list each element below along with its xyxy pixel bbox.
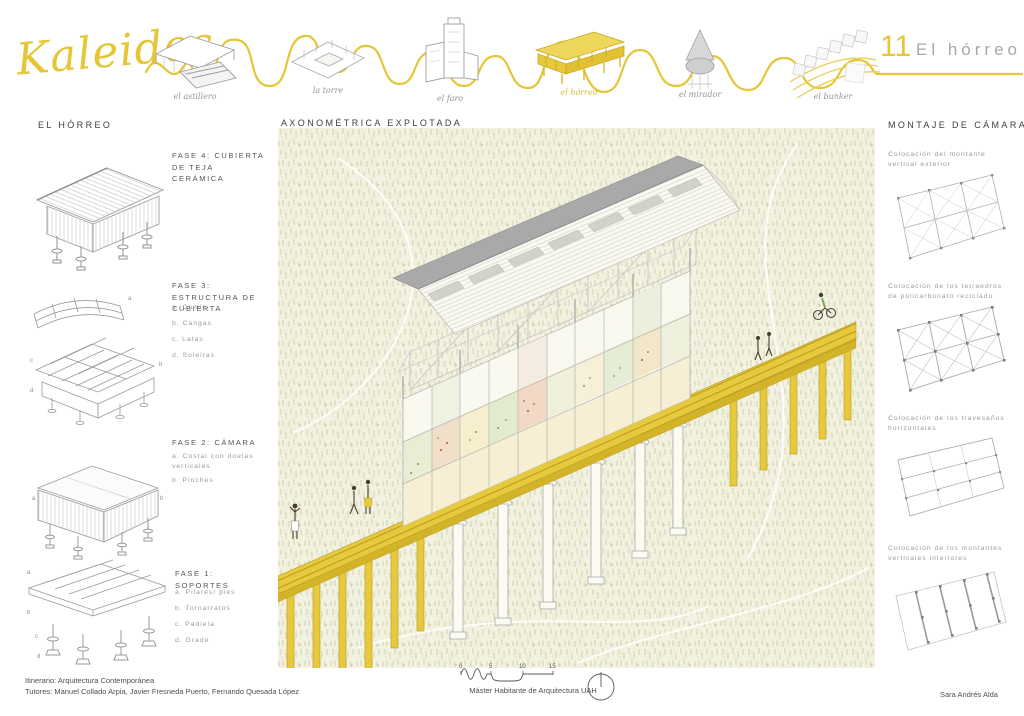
phase-1-drawing: a b c d — [25, 558, 170, 668]
north-compass — [584, 668, 618, 704]
project-icon-astillero — [150, 20, 240, 90]
phase-3-marker-b: b — [159, 362, 163, 368]
project-label-faro: el faro — [405, 94, 495, 103]
scale-tick-15: 15 — [549, 664, 556, 670]
phase-4-title: FASE 4: CUBIERTA DE TEJA CERÁMICA — [172, 150, 267, 185]
step-2-diagram — [888, 302, 1013, 407]
step-1-diagram — [888, 170, 1013, 275]
scale-tick-0: 0 — [459, 664, 463, 670]
project-icon-bunker — [786, 22, 881, 94]
sheet-title: El hórreo — [916, 40, 1021, 60]
scale-bar: 0 5 10 15 — [458, 662, 558, 682]
phase-4-drawing — [35, 148, 165, 273]
phase-2-marker-b: b — [160, 496, 164, 502]
sheet-number: 11 — [880, 30, 911, 64]
project-icon-mirador — [670, 26, 730, 94]
project-icon-faro — [412, 16, 487, 94]
axonometric-drawing — [278, 128, 875, 668]
project-label-mirador: el mirador — [655, 90, 745, 99]
phase-1-marker-d: d — [37, 654, 40, 660]
phase-3-marker-d: d — [30, 388, 33, 394]
project-icon-horreo — [532, 24, 627, 86]
project-label-horreo: el hórreo — [534, 88, 624, 97]
phase-3-item-b: b. Cangas — [172, 319, 272, 329]
project-label-astillero: el astillero — [150, 92, 240, 101]
project-label-bunker: el bunker — [788, 92, 878, 101]
phase-2-title: FASE 2: CÁMARA — [172, 437, 267, 449]
scale-tick-5: 5 — [489, 664, 493, 670]
left-panel-title: EL HÓRREO — [38, 120, 112, 130]
scale-tick-10: 10 — [519, 664, 526, 670]
phase-3-item-d: d. Soleiras — [172, 351, 272, 361]
phase-2-drawing: a b — [30, 450, 165, 565]
phase-3-item-c: c. Latas — [172, 335, 272, 345]
step-1-caption: Colocación del montante vertical exterio… — [888, 150, 1010, 170]
phase-3-item-a: a. Cumio — [172, 303, 272, 313]
project-label-torre: la torre — [283, 86, 373, 95]
project-icon-torre — [288, 28, 368, 83]
phase-1-item-c: c. Padiela — [175, 620, 275, 630]
phase-1-item-a: a. Pilares/ pies — [175, 588, 275, 598]
footer-itinerary: Itinerario: Arquitectura Contemporánea — [25, 676, 154, 687]
phase-3-drawing: a b c d — [28, 286, 168, 436]
phase-3-marker-c: c — [30, 358, 33, 364]
step-3-diagram — [888, 434, 1013, 534]
phase-1-marker-a: a — [27, 570, 31, 576]
phase-1-item-d: d. Grade — [175, 636, 275, 646]
step-2-caption: Colocación de los tetraedros de policarb… — [888, 282, 1010, 302]
phase-2-marker-a: a — [32, 496, 36, 502]
presentation-board: { "header": { "logo_text": "Kaleidos", "… — [0, 0, 1024, 716]
right-panel-title: MONTAJE DE CÁMARA — [888, 120, 1024, 130]
phase-2-item-b: b. Pinches — [172, 476, 272, 486]
phase-2-item-a: a. Costal con doelas verticales — [172, 452, 264, 472]
center-panel-title: AXONOMÉTRICA EXPLOTADA — [281, 118, 462, 128]
step-4-caption: Colocación de los montantes verticales i… — [888, 544, 1010, 564]
phase-3-marker-a: a — [128, 296, 132, 302]
phase-1-marker-b: b — [27, 610, 31, 616]
phase-1-marker-c: c — [35, 634, 38, 640]
step-3-caption: Colocación de los travesaños horizontale… — [888, 414, 1010, 434]
footer-tutors: Tutores: Manuel Collado Arpia, Javier Fr… — [25, 687, 299, 698]
step-4-diagram — [888, 566, 1013, 671]
phase-1-item-b: b. Tornarratos — [175, 604, 275, 614]
footer-author: Sara Andrés Alda — [940, 690, 998, 701]
